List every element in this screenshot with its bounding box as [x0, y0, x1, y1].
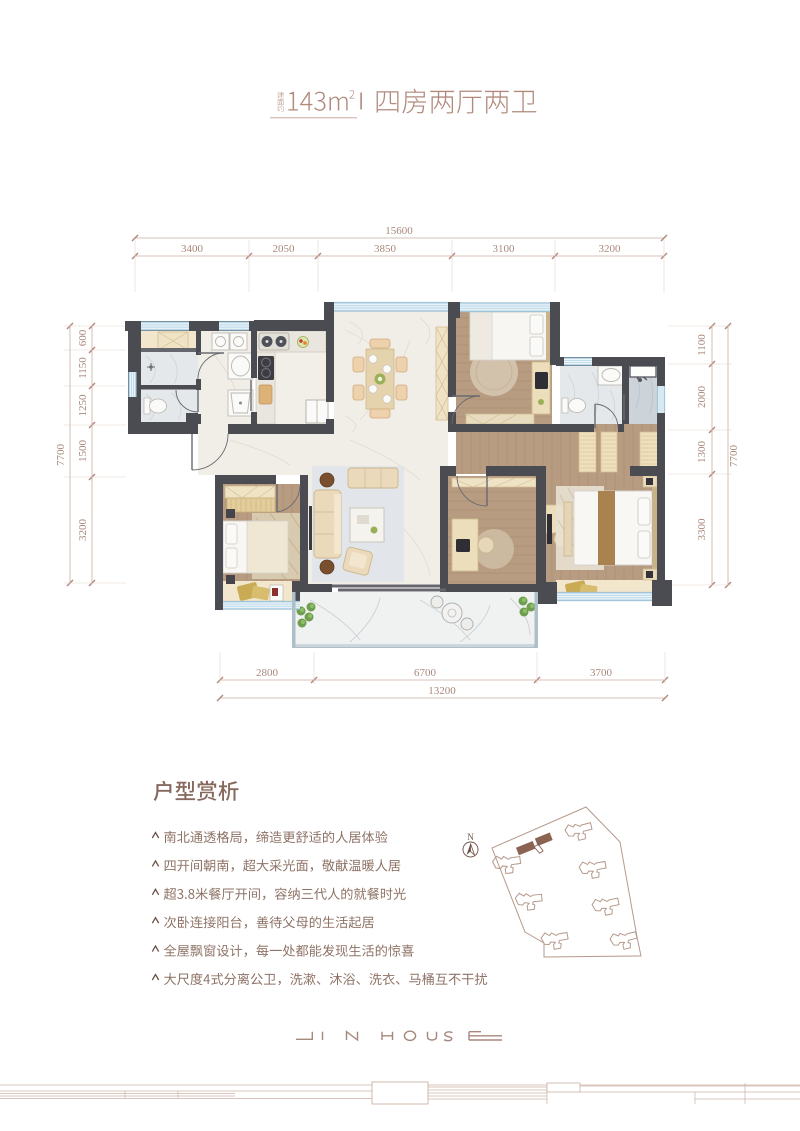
svg-text:3300: 3300: [696, 518, 708, 541]
svg-text:6700: 6700: [414, 667, 437, 679]
svg-text:7700: 7700: [728, 445, 740, 468]
svg-text:600: 600: [77, 329, 89, 346]
svg-text:3200: 3200: [77, 519, 89, 542]
svg-text:1100: 1100: [696, 334, 708, 356]
svg-text:2800: 2800: [256, 667, 279, 679]
svg-text:7700: 7700: [55, 444, 67, 467]
svg-text:2000: 2000: [696, 386, 708, 409]
svg-text:15600: 15600: [385, 225, 413, 237]
svg-text:3700: 3700: [590, 667, 613, 679]
svg-text:2050: 2050: [273, 243, 296, 255]
svg-text:3100: 3100: [493, 243, 516, 255]
svg-text:1300: 1300: [696, 441, 708, 464]
svg-text:1150: 1150: [77, 357, 89, 379]
svg-text:1500: 1500: [77, 440, 89, 463]
svg-text:13200: 13200: [428, 685, 456, 697]
svg-text:3400: 3400: [181, 243, 204, 255]
svg-text:3850: 3850: [374, 243, 397, 255]
svg-text:1250: 1250: [77, 394, 89, 417]
svg-text:N: N: [467, 832, 474, 842]
svg-text:3200: 3200: [599, 243, 622, 255]
